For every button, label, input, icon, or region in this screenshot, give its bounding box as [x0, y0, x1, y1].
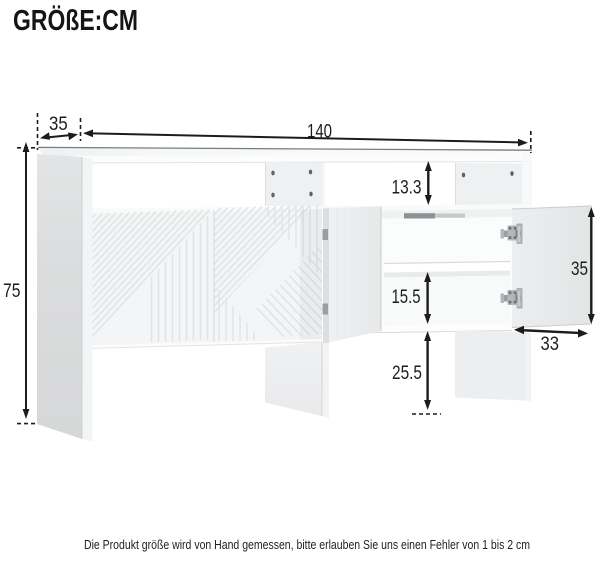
svg-text:Die Produkt größe wird von Han: Die Produkt größe wird von Hand gemessen…	[84, 537, 530, 552]
svg-text:15.5: 15.5	[392, 287, 421, 308]
svg-text:35: 35	[49, 114, 68, 135]
svg-text:35: 35	[571, 259, 588, 280]
svg-text:33: 33	[541, 334, 560, 355]
svg-text:13.3: 13.3	[392, 177, 422, 198]
svg-text:25.5: 25.5	[392, 363, 422, 384]
svg-text:GRÖßE:CM: GRÖßE:CM	[13, 4, 138, 37]
svg-text:75: 75	[3, 281, 21, 302]
svg-text:140: 140	[307, 122, 332, 143]
